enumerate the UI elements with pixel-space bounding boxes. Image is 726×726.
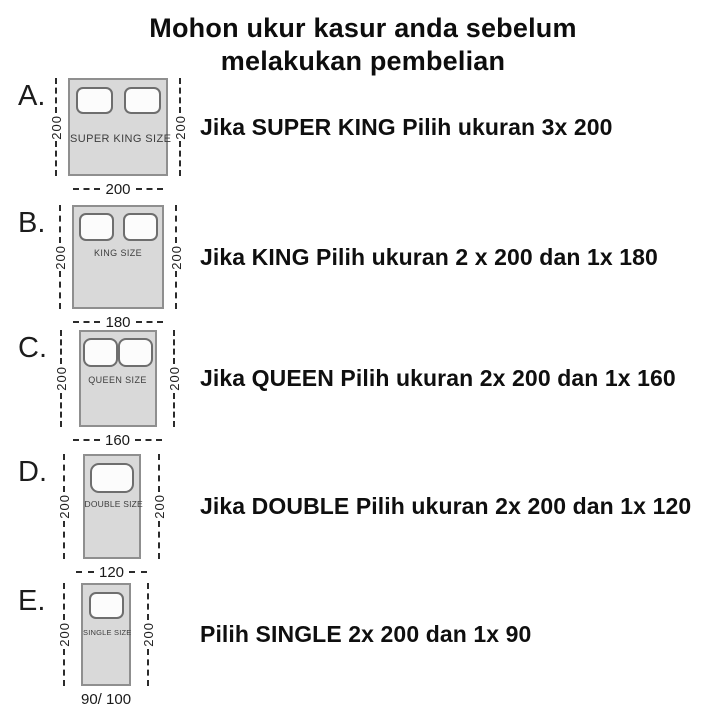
bed-column: SINGLE SIZE 90/ 100 <box>76 583 136 708</box>
dashed-line <box>63 521 65 559</box>
bed-size-label: SINGLE SIZE <box>83 629 129 637</box>
dimension-label-right: 200 <box>168 366 181 391</box>
row-instruction: Jika SUPER KING Pilih ukuran 3x 200 <box>200 78 726 176</box>
dashed-line <box>76 571 94 573</box>
bed-illustration: SUPER KING SIZE <box>68 78 168 176</box>
dashed-line <box>173 330 175 364</box>
dashed-line <box>59 205 61 243</box>
dashed-line <box>63 454 65 492</box>
dimension-label-left: 200 <box>58 622 71 647</box>
bed-diagram: 200 SUPER KING SIZE 200 200 <box>46 78 190 198</box>
vertical-dimension-right: 200 <box>149 454 169 559</box>
dashed-line <box>173 393 175 427</box>
vertical-dimension-left: 200 <box>54 454 74 559</box>
dashed-line <box>73 188 100 190</box>
dashed-line <box>179 141 181 176</box>
vertical-dimension-left: 200 <box>51 330 71 427</box>
page-title-line2: melakukan pembelian <box>0 45 726 78</box>
row-instruction: Jika KING Pilih ukuran 2 x 200 dan 1x 18… <box>200 205 726 309</box>
dashed-line <box>175 271 177 309</box>
row-letter: D. <box>18 456 47 489</box>
dimension-label-bottom: 160 <box>105 433 130 448</box>
dashed-line <box>147 583 149 620</box>
dimension-label-left: 200 <box>54 245 67 270</box>
dashed-line <box>63 583 65 620</box>
bed-size-infographic: Mohon ukur kasur anda sebelum melakukan … <box>0 0 726 726</box>
horizontal-dimension: 160 <box>73 431 162 449</box>
row-letter: B. <box>18 207 45 240</box>
page-title: Mohon ukur kasur anda sebelum melakukan … <box>0 12 726 78</box>
dashed-line <box>135 439 162 441</box>
dimension-label-bottom: 180 <box>105 315 130 330</box>
pillow <box>90 463 134 493</box>
pillow <box>79 213 114 241</box>
horizontal-dimension: 180 <box>73 313 162 331</box>
row-letter: E. <box>18 585 45 618</box>
horizontal-dimension: 200 <box>73 180 162 198</box>
dashed-line <box>158 521 160 559</box>
bed-illustration: KING SIZE <box>72 205 164 309</box>
bed-column: KING SIZE 180 <box>72 205 164 331</box>
bed-diagram: 200 KING SIZE 180 200 <box>50 205 186 331</box>
bed-diagram: 200 SINGLE SIZE 90/ 100 200 <box>54 583 158 708</box>
bed-size-label: QUEEN SIZE <box>81 376 155 385</box>
pillow <box>118 338 153 367</box>
dimension-label-left: 200 <box>55 366 68 391</box>
horizontal-dimension: 90/ 100 <box>76 690 136 708</box>
dashed-line <box>60 393 62 427</box>
bed-size-label: SUPER KING SIZE <box>70 134 166 145</box>
dashed-line <box>60 330 62 364</box>
row-instruction: Pilih SINGLE 2x 200 dan 1x 90 <box>200 583 726 686</box>
dimension-label-bottom: 90/ 100 <box>81 692 131 707</box>
pillow-row <box>81 332 155 367</box>
dashed-line <box>179 78 181 113</box>
dashed-line <box>73 321 100 323</box>
vertical-dimension-left: 200 <box>54 583 74 686</box>
dimension-label-bottom: 120 <box>99 565 124 580</box>
dimension-label-bottom: 200 <box>105 182 130 197</box>
bed-illustration: QUEEN SIZE <box>79 330 157 427</box>
bed-column: DOUBLE SIZE 120 <box>76 454 147 581</box>
dashed-line <box>136 188 163 190</box>
row-instruction: Jika DOUBLE Pilih ukuran 2x 200 dan 1x 1… <box>200 454 726 559</box>
horizontal-dimension: 120 <box>76 563 147 581</box>
dimension-label-right: 200 <box>174 115 187 140</box>
dashed-line <box>55 141 57 176</box>
pillow <box>124 87 161 114</box>
pillow <box>83 338 118 367</box>
bed-diagram: 200 DOUBLE SIZE 120 200 <box>54 454 169 581</box>
dimension-label-right: 200 <box>142 622 155 647</box>
page-title-line1: Mohon ukur kasur anda sebelum <box>0 12 726 45</box>
dashed-line <box>55 78 57 113</box>
vertical-dimension-right: 200 <box>166 205 186 309</box>
vertical-dimension-right: 200 <box>164 330 184 427</box>
bed-diagram: 200 QUEEN SIZE 160 200 <box>51 330 184 449</box>
row-letter: C. <box>18 332 47 365</box>
row-letter: A. <box>18 80 45 113</box>
dimension-label-right: 200 <box>153 494 166 519</box>
dashed-line <box>59 271 61 309</box>
row-instruction: Jika QUEEN Pilih ukuran 2x 200 dan 1x 16… <box>200 330 726 427</box>
bed-illustration: DOUBLE SIZE <box>83 454 141 559</box>
pillow-row <box>70 80 166 114</box>
dashed-line <box>129 571 147 573</box>
pillow <box>89 592 124 619</box>
vertical-dimension-left: 200 <box>50 205 70 309</box>
vertical-dimension-right: 200 <box>138 583 158 686</box>
dimension-label-right: 200 <box>170 245 183 270</box>
dimension-label-left: 200 <box>50 115 63 140</box>
bed-illustration: SINGLE SIZE <box>81 583 131 686</box>
bed-size-label: KING SIZE <box>74 249 162 258</box>
vertical-dimension-left: 200 <box>46 78 66 176</box>
pillow <box>123 213 158 241</box>
dashed-line <box>158 454 160 492</box>
dashed-line <box>63 649 65 686</box>
dashed-line <box>73 439 100 441</box>
pillow <box>76 87 113 114</box>
dashed-line <box>147 649 149 686</box>
bed-column: QUEEN SIZE 160 <box>73 330 162 449</box>
vertical-dimension-right: 200 <box>170 78 190 176</box>
bed-column: SUPER KING SIZE 200 <box>68 78 168 198</box>
pillow-row <box>74 207 162 241</box>
dashed-line <box>175 205 177 243</box>
pillow-row <box>85 456 139 493</box>
dashed-line <box>136 321 163 323</box>
dimension-label-left: 200 <box>58 494 71 519</box>
pillow-row <box>83 585 129 619</box>
bed-size-label: DOUBLE SIZE <box>85 500 139 509</box>
